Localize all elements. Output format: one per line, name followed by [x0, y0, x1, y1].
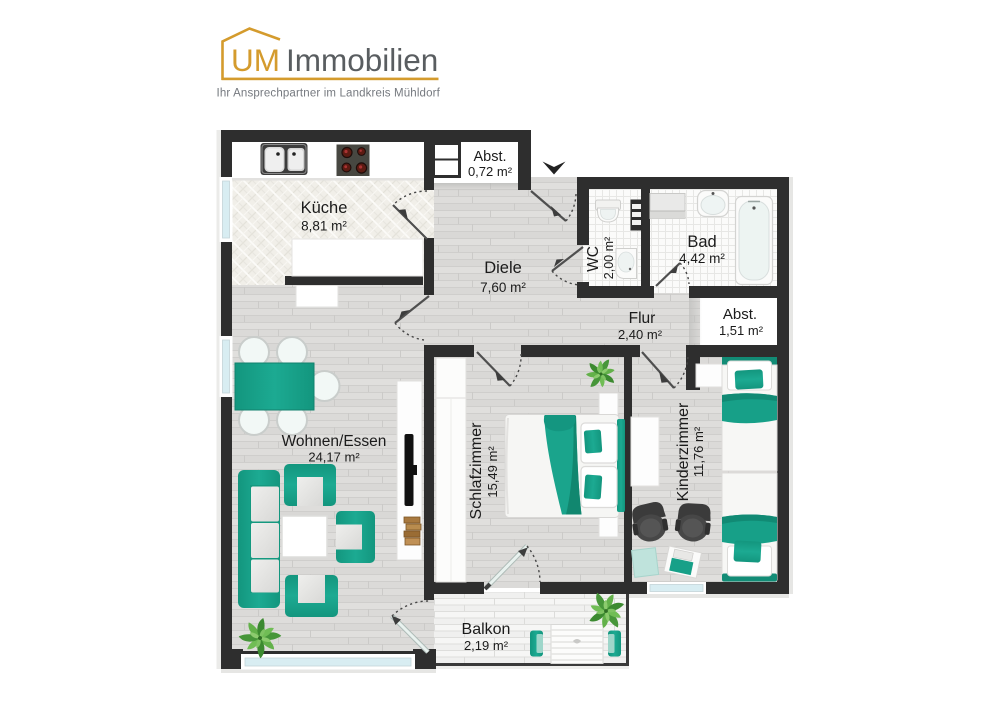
svg-text:2,40 m²: 2,40 m² — [618, 327, 663, 342]
svg-text:Ihr Ansprechpartner im Landkre: Ihr Ansprechpartner im Landkreis Mühldor… — [217, 88, 441, 100]
svg-text:24,17 m²: 24,17 m² — [308, 450, 360, 465]
svg-text:Schlafzimmer: Schlafzimmer — [468, 422, 485, 520]
svg-text:Wohnen/Essen: Wohnen/Essen — [282, 433, 387, 450]
svg-text:Kinderzimmer: Kinderzimmer — [675, 402, 692, 501]
svg-text:2,19 m²: 2,19 m² — [464, 638, 509, 653]
svg-text:Küche: Küche — [301, 199, 348, 217]
svg-text:2,00 m²: 2,00 m² — [602, 237, 616, 279]
svg-text:Balkon: Balkon — [462, 621, 511, 638]
svg-text:11,76 m²: 11,76 m² — [691, 426, 706, 477]
svg-text:Immobilien: Immobilien — [286, 42, 438, 78]
svg-text:0,72 m²: 0,72 m² — [468, 164, 513, 179]
svg-text:Flur: Flur — [629, 310, 656, 327]
svg-text:Diele: Diele — [484, 259, 522, 277]
svg-text:1,51 m²: 1,51 m² — [719, 323, 764, 338]
svg-text:WC: WC — [585, 246, 602, 272]
svg-text:15,49 m²: 15,49 m² — [485, 446, 500, 498]
svg-text:Abst.: Abst. — [723, 306, 757, 323]
svg-text:Abst.: Abst. — [473, 149, 506, 165]
svg-text:4,42 m²: 4,42 m² — [679, 251, 725, 266]
svg-text:UM: UM — [231, 42, 280, 78]
svg-text:Bad: Bad — [687, 233, 716, 251]
svg-text:7,60 m²: 7,60 m² — [480, 280, 526, 295]
svg-text:8,81 m²: 8,81 m² — [301, 219, 347, 234]
